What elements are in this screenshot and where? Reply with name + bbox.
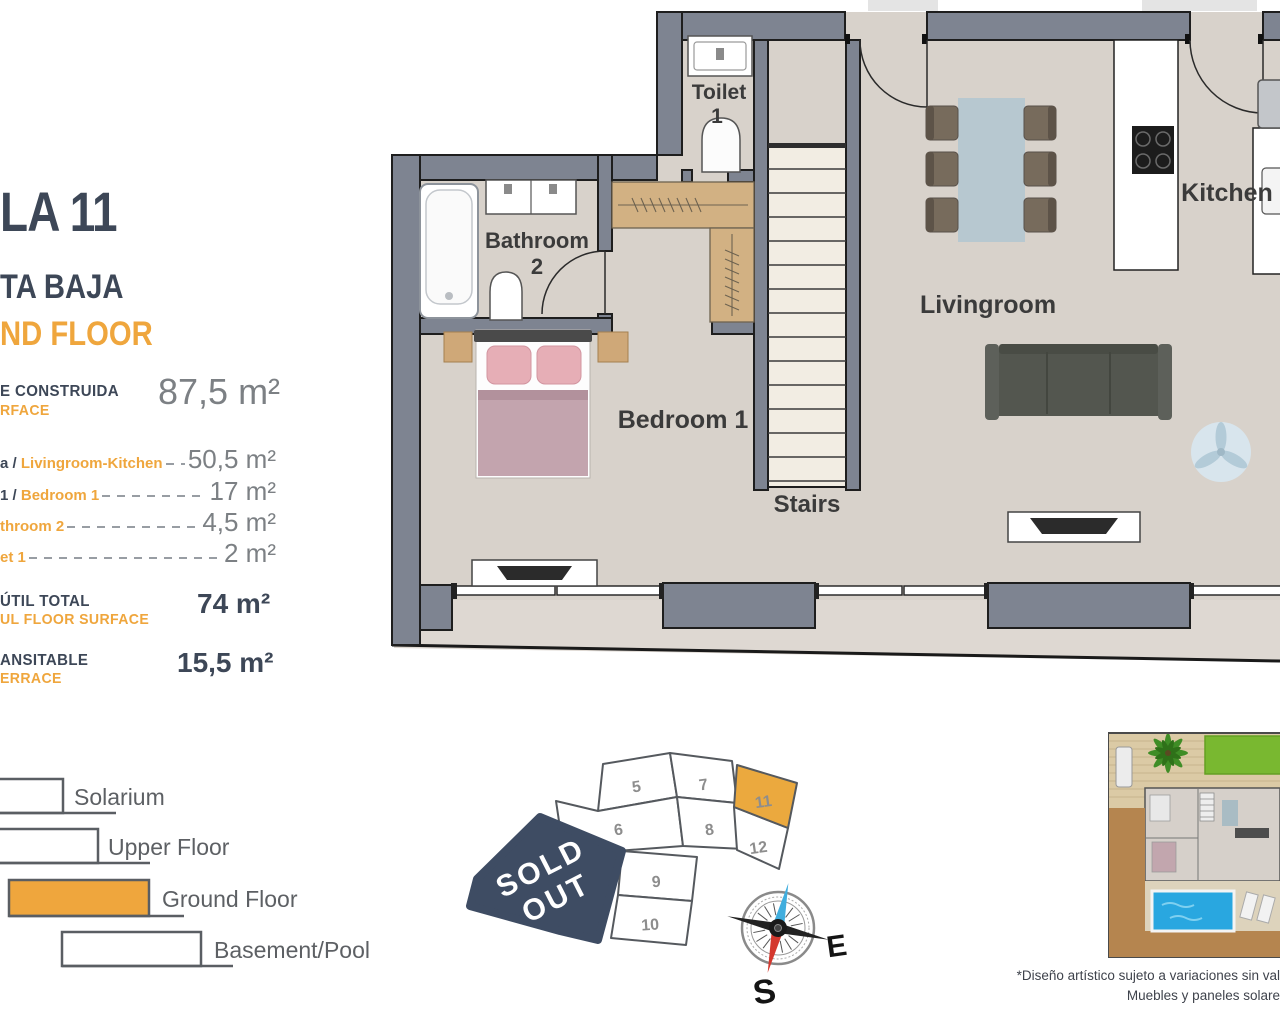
livingroom-label: Livingroom [920,291,1056,319]
useful-surface-label-en: UL FLOOR SURFACE [0,611,149,629]
disclaimer-line2: Muebles y paneles solare [1017,986,1280,1006]
area-row-bedroom-1: 1 / Bedroom 117 m² [0,478,276,504]
dining-table [958,98,1025,242]
dotted-leader [67,526,199,528]
terrace-value: 15,5 m² [177,649,274,677]
disclaimer: *Diseño artístico sujeto a variaciones s… [1017,966,1280,1007]
subtitle-planta-baja: TA BAJA [0,270,123,304]
bedroom-label: Bedroom 1 [618,406,749,434]
soil-strip [1108,931,1280,958]
area-row-label: et 1 [0,549,26,566]
stairs-label: Stairs [774,491,841,518]
toilet-number: 1 [711,105,723,128]
disclaimer-line1: *Diseño artístico sujeto a variaciones s… [1017,966,1280,986]
legend-label-basement-pool: Basement/Pool [214,937,370,963]
sunbed [1116,747,1132,787]
tv-cabinet [1008,512,1140,542]
legend: Solarium Upper Floor Ground Floor Baseme… [0,779,370,966]
compass-rose: E S [717,871,849,1012]
area-row-label: Bedroom 1 [21,487,99,504]
area-row-value: 4,5 m² [202,509,276,535]
bathroom-number: 2 [531,254,543,279]
compass-south-label: S [751,972,779,1013]
legend-box-ground-floor [9,880,149,916]
legend-box-basement-pool [62,932,201,966]
stairs [768,143,846,487]
legend-label-upper-floor: Upper Floor [108,834,230,860]
bed [474,330,592,478]
lawn [1205,736,1280,774]
ceiling-fan-icon [1191,422,1251,482]
plot-number-9: 9 [651,874,661,892]
area-row-toilet-1: et 12 m² [0,540,276,566]
palm-tree-icon [1148,733,1188,773]
compass-east-label: E [824,929,848,964]
mini-bed [1152,842,1176,872]
plot-number-12: 12 [748,839,768,858]
useful-surface-label-es: ÚTIL TOTAL [0,592,90,611]
tv-icon [1030,518,1118,534]
mini-bath [1150,795,1170,821]
plot-number-10: 10 [641,916,660,934]
cooktop-icon [1132,126,1174,174]
mini-table [1222,800,1238,826]
useful-surface-value: 74 m² [197,590,270,618]
area-row-label: Livingroom-Kitchen [21,455,163,472]
area-row-livingroom-kitchen: a / Livingroom-Kitchen50,5 m² [0,446,276,472]
built-surface-label-es: E CONSTRUIDA [0,382,119,401]
compass-needles [717,871,839,984]
area-row-prefix: a / [0,455,21,472]
legend-box-solarium [0,779,63,813]
area-row-value: 2 m² [224,540,276,566]
terrace-label-es: ANSITABLE [0,651,88,670]
kitchen-label: Kitchen [1181,179,1273,207]
area-row-bathroom-2: throom 24,5 m² [0,509,276,535]
dotted-leader [102,495,206,497]
villa-aerial-thumbnail [1108,733,1280,958]
dotted-leader [29,557,221,559]
toilet-label: Toilet [692,81,746,104]
nightstand [598,332,628,362]
top-artifact [868,0,938,11]
legend-label-ground-floor: Ground Floor [162,886,298,912]
built-surface-label-en: RFACE [0,402,50,420]
legend-box-upper-floor [0,829,98,863]
area-row-value: 17 m² [210,478,276,504]
tv-icon [497,566,572,580]
area-row-value: 50,5 m² [188,446,276,472]
dotted-leader [166,463,185,465]
sofa [985,344,1172,420]
toilet-bowl [490,272,522,320]
top-artifact [1142,0,1257,11]
villa-title: LA 11 [0,184,117,240]
plot-number-11: 11 [754,793,773,812]
pool [1152,891,1234,931]
bathroom-label: Bathroom [485,228,589,253]
area-row-label: throom 2 [0,518,64,535]
area-row-prefix: 1 / [0,487,21,504]
built-surface-value: 87,5 m² [158,374,280,410]
legend-label-solarium: Solarium [74,784,165,810]
terrace-label-en: ERRACE [0,670,62,688]
subtitle-ground-floor: ND FLOOR [0,317,153,351]
mini-sofa [1235,828,1269,838]
fridge [1258,80,1280,128]
tv-cabinet [472,560,597,586]
floor-plan: Toilet 1 Bathroom 2 Bedroom 1 Stairs Liv… [392,0,1280,662]
nightstand [444,332,472,362]
floorplan-sheet: Toilet 1 Bathroom 2 Bedroom 1 Stairs Liv… [0,0,1280,1024]
